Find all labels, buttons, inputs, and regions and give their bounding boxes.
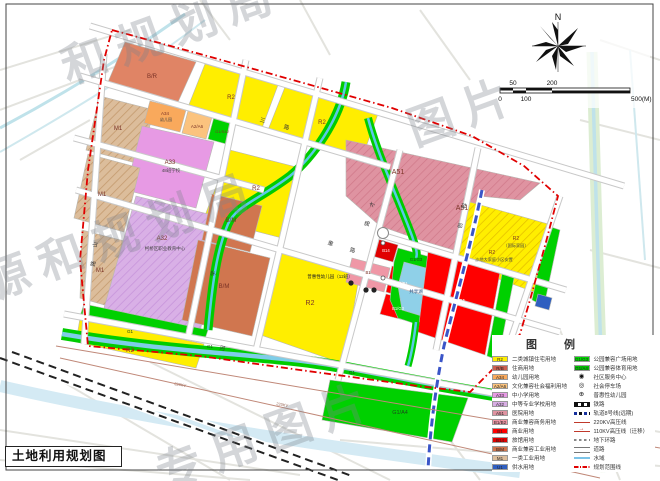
label-bm: B/M	[226, 218, 237, 224]
legend-swatch: B1/B2	[492, 419, 508, 425]
legend-swatch: B/M	[492, 446, 508, 452]
kindergarten-icon: ⊕	[574, 391, 590, 398]
label-b2b1: B2/B1	[396, 281, 408, 286]
legend-row: B1商业用地	[492, 426, 574, 435]
legend-row: ◉社区服务中心	[574, 372, 656, 381]
legend-row: 铁路	[574, 399, 656, 408]
label-kindergarten-callout: 普惠性幼儿园（12班）	[307, 273, 353, 280]
legend-swatch: B14	[492, 437, 508, 443]
legend-swatch: A51	[492, 410, 508, 416]
svg-text:200: 200	[547, 80, 558, 87]
legend-swatch: A34	[492, 374, 508, 380]
legend-swatch: R2	[492, 356, 508, 362]
map-title: 土地利用规划图	[12, 449, 107, 463]
legend-row: 轨道8号线(远期)	[574, 408, 656, 417]
svg-text:0: 0	[498, 96, 502, 103]
legend-swatch: M1	[492, 455, 508, 461]
label-a51: A51	[392, 169, 405, 176]
legend-row: 220KV高压线	[574, 417, 656, 426]
svg-text:M1: M1	[98, 192, 107, 198]
planning-map-canvas: B/R R2 R2 M1 A34 幼儿园 A2/A6 G1/S42 A33 48…	[0, 0, 660, 481]
legend-row: B14旅馆用地	[492, 435, 574, 444]
north-label: N	[555, 12, 562, 22]
roundabout-circle	[378, 228, 389, 239]
svg-text:幼儿园: 幼儿园	[160, 116, 172, 122]
svg-text:G1: G1	[349, 370, 356, 375]
legend-row: A2/A6文化兼容社会福利用地	[492, 381, 574, 390]
svg-text:500(M): 500(M)	[631, 96, 652, 103]
legend-row: A32中等专业学校用地	[492, 399, 574, 408]
svg-text:48班学校: 48班学校	[162, 167, 181, 174]
hv110-symbol	[574, 427, 590, 434]
label-a32: A32	[157, 236, 168, 242]
legend-row: G1/G3公园兼容广场用地	[574, 354, 656, 363]
svg-text:沙地大家庭小区安置: 沙地大家庭小区安置	[475, 256, 513, 263]
callout-dot-1	[381, 241, 385, 245]
label-r2: R2	[227, 95, 235, 101]
legend-swatch: U1	[492, 464, 508, 470]
legend-row: 道路	[574, 444, 656, 453]
svg-text:B2/B1: B2/B1	[451, 299, 466, 305]
legend-row: R/B住商用地	[492, 363, 574, 372]
community-center-icon	[363, 287, 368, 292]
parking-icon: ◎	[574, 382, 590, 389]
svg-text:（国际家园）: （国际家园）	[503, 242, 528, 249]
underpass-symbol	[574, 436, 590, 443]
svg-text:R2: R2	[489, 250, 496, 256]
legend-swatch: A2/A6	[492, 383, 508, 389]
legend-row: B/M商业兼容工业用地	[492, 444, 574, 453]
svg-text:G1: G1	[207, 344, 214, 349]
callout-dot-2	[381, 276, 385, 280]
hv220-symbol	[574, 418, 590, 425]
legend-swatch: B1	[492, 428, 508, 434]
legend-row: A34幼儿园用地	[492, 372, 574, 381]
legend-right-column: G1/G3公园兼容广场用地 G1/A4公园兼容体育用地 ◉社区服务中心 ◎社会停…	[574, 354, 656, 471]
label-a34: A34	[161, 111, 170, 116]
label-lake: 共享湖	[409, 288, 423, 295]
label-g1a4: G1/A4	[392, 410, 408, 416]
community-center-icon: ◉	[574, 373, 590, 380]
legend-swatch: G1/A4	[574, 365, 590, 371]
svg-text:R2: R2	[306, 300, 315, 307]
legend-title: 图 例	[526, 336, 655, 352]
label-g1s42: G1/S42	[215, 129, 229, 134]
legend-row: ◎社会停车场	[574, 381, 656, 390]
boundary-symbol	[574, 463, 590, 470]
legend-row: G1/A4公园兼容体育用地	[574, 363, 656, 372]
road-symbol	[574, 445, 590, 452]
legend-left-column: R2二类城镇住宅用地 R/B住商用地 A34幼儿园用地 A2/A6文化兼容社会福…	[492, 354, 574, 471]
label-m1: M1	[114, 126, 123, 132]
legend-row: R2二类城镇住宅用地	[492, 354, 574, 363]
label-a33: A33	[165, 160, 176, 166]
svg-text:R2: R2	[126, 348, 134, 354]
legend-row: 地下环路	[574, 435, 656, 444]
svg-text:M1: M1	[96, 268, 105, 274]
legend-swatch: G1/G3	[574, 356, 590, 362]
parking-icon	[371, 287, 376, 292]
label-a2a6: A2/A6	[191, 124, 204, 129]
label-g1: G1	[127, 329, 134, 334]
legend-row: M1一类工业用地	[492, 453, 574, 462]
svg-text:B/M: B/M	[219, 284, 230, 290]
svg-text:柯桥区职业教育中心: 柯桥区职业教育中心	[145, 245, 186, 252]
legend-panel: 图 例 R2二类城镇住宅用地 R/B住商用地 A34幼儿园用地 A2/A6文化兼…	[492, 335, 655, 472]
legend-swatch: A33	[492, 392, 508, 398]
water-symbol	[574, 454, 590, 461]
legend-row: 水域	[574, 453, 656, 462]
legend-row: 规划范围线	[574, 462, 656, 471]
legend-row: ⊕普惠性幼儿园	[574, 390, 656, 399]
map-title-box: 土地利用规划图	[5, 446, 122, 467]
label-b1: B1	[365, 270, 371, 275]
svg-text:R2: R2	[318, 120, 326, 126]
svg-text:R2: R2	[513, 236, 520, 242]
svg-text:R2: R2	[252, 186, 260, 192]
label-b14: B14	[382, 248, 390, 253]
label-b1g3: B1/G3	[392, 306, 405, 311]
legend-swatch: R/B	[492, 365, 508, 371]
kindergarten-icon	[348, 280, 353, 285]
metro-symbol	[574, 409, 590, 416]
legend-row: B1/B2商业兼容商务用地	[492, 417, 574, 426]
legend-row: 110KV高压线（迁移）	[574, 426, 656, 435]
legend-row: A51医院用地	[492, 408, 574, 417]
svg-text:50: 50	[509, 80, 517, 87]
label-g1g3: G1/G3	[410, 257, 423, 262]
legend-swatch: A32	[492, 401, 508, 407]
legend-row: A33中小学用地	[492, 390, 574, 399]
legend-row: U1供水用地	[492, 462, 574, 471]
label-br: B/R	[147, 74, 158, 80]
railway-symbol	[574, 400, 590, 407]
svg-text:100: 100	[521, 96, 532, 103]
